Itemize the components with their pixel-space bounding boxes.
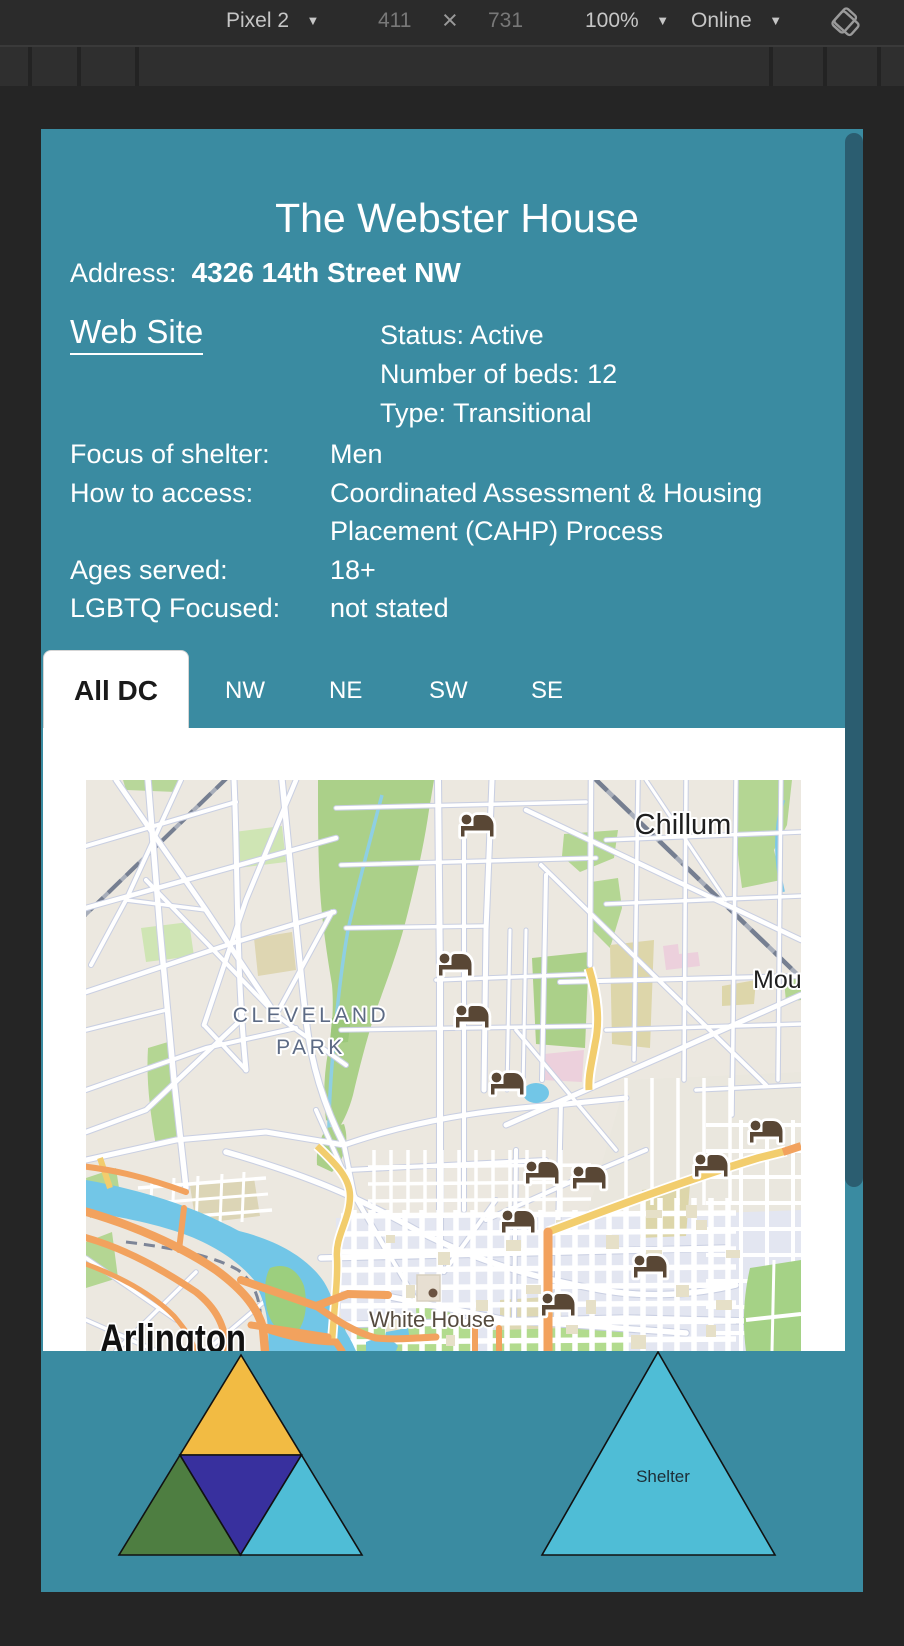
svg-text:CLEVELAND: CLEVELAND	[233, 1004, 389, 1027]
svg-text:PARK: PARK	[276, 1036, 346, 1059]
svg-text:Arlington: Arlington	[100, 1317, 246, 1351]
svg-text:Moun: Moun	[753, 966, 801, 994]
svg-text:Shelter: Shelter	[636, 1467, 690, 1486]
svg-text:White House: White House	[369, 1307, 495, 1332]
svg-text:Chillum: Chillum	[635, 809, 732, 841]
